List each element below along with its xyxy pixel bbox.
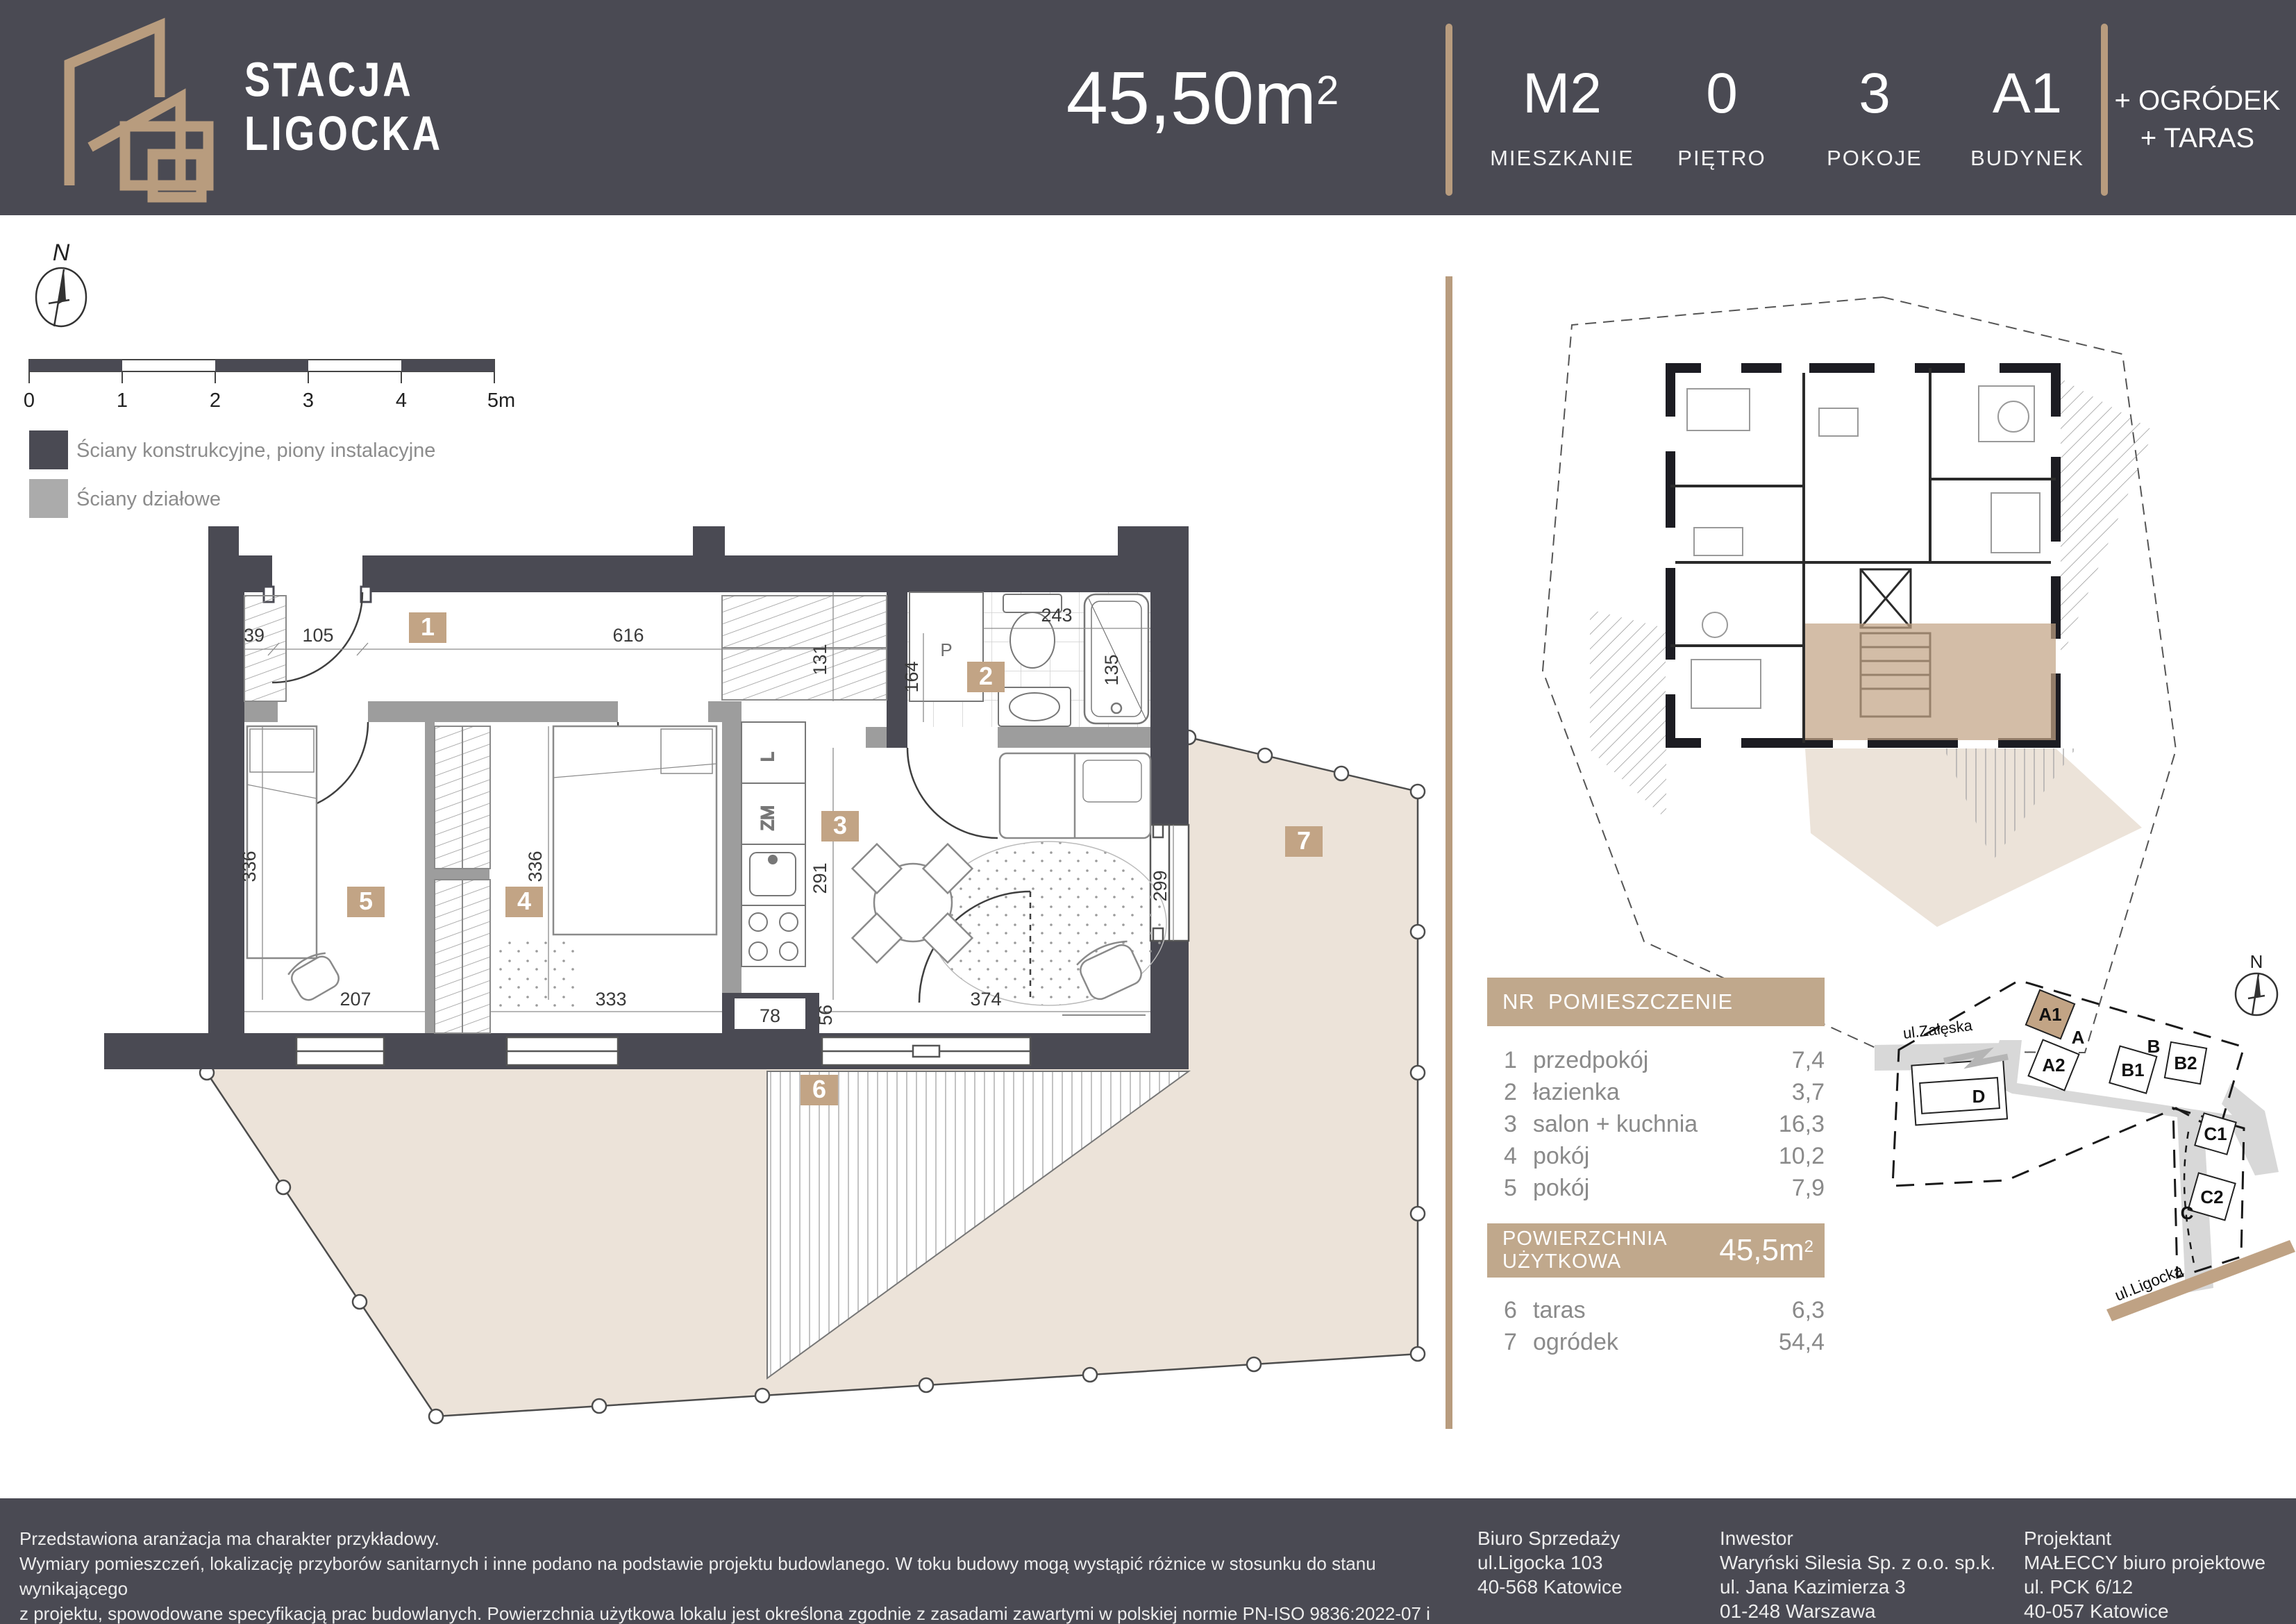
legend-partition-label: Ściany działowe — [76, 487, 221, 510]
stat-floor-value: 0 — [1652, 61, 1791, 126]
chip-room-3: 3 — [821, 811, 859, 842]
dishwasher-label: ZM — [758, 805, 778, 830]
table-row: 3salon + kuchnia16,3 — [1487, 1108, 1825, 1140]
apartment-area: 45,50m2 — [1066, 54, 1339, 141]
stat-building-label: BUDYNEK — [1958, 146, 2097, 171]
street-zaleska-label: ul.Załęska — [1902, 1016, 1974, 1042]
wall-stub — [1118, 526, 1189, 557]
dim-105: 105 — [302, 625, 333, 646]
svg-text:A1: A1 — [2038, 1004, 2061, 1025]
svg-text:3: 3 — [833, 811, 847, 839]
site-building-d — [1920, 1078, 2000, 1114]
chip-room-4: 4 — [505, 887, 543, 917]
wall-stub — [104, 1033, 208, 1069]
dim-78: 78 — [760, 1005, 780, 1026]
wall-stub — [208, 526, 239, 557]
overview-hatch-right — [2061, 378, 2154, 661]
svg-text:1: 1 — [117, 390, 128, 412]
window-living-terrace-door — [822, 1037, 1030, 1065]
dim-374: 374 — [970, 989, 1001, 1010]
sink-icon — [998, 687, 1071, 726]
dim-299: 299 — [1150, 870, 1171, 901]
dim-164: 164 — [901, 661, 922, 692]
sofa — [1000, 753, 1150, 838]
svg-text:4: 4 — [517, 887, 531, 915]
washer-label: P — [940, 639, 952, 660]
header-bar: STACJA LIGOCKA 45,50m2 M2 MIESZKANIE 0 P… — [0, 0, 2296, 215]
svg-text:6: 6 — [812, 1075, 826, 1103]
site-compass-icon — [2236, 973, 2277, 1015]
dim-333: 333 — [595, 989, 626, 1010]
bed-room4 — [553, 726, 717, 935]
dim-207: 207 — [340, 989, 371, 1010]
site-label-a: A — [2072, 1027, 2085, 1048]
stat-floor: 0 PIĘTRO — [1652, 0, 1791, 215]
scale-bar: 0 1 2 3 4 5m — [24, 360, 515, 412]
wardrobe-hall-left — [244, 596, 286, 701]
window-room4 — [507, 1037, 618, 1065]
svg-text:5: 5 — [359, 887, 373, 915]
usable-area-bar: POWIERZCHNIA UŻYTKOWA 45,5m2 — [1487, 1223, 1825, 1278]
svg-text:2: 2 — [979, 662, 993, 690]
svg-text:7: 7 — [1297, 826, 1311, 855]
room-table-header: NR POMIESZCZENIE — [1487, 978, 1825, 1026]
footer-bar: Przedstawiona aranżacja ma charakter prz… — [0, 1498, 2296, 1624]
chip-room-2: 2 — [967, 662, 1005, 692]
dim-336-right: 336 — [525, 851, 546, 882]
stat-building-value: A1 — [1958, 61, 2097, 126]
dim-56: 56 — [815, 1005, 836, 1026]
legend-swatch-partition — [29, 479, 68, 518]
disclaimer-line: Wymiary pomieszczeń, lokalizację przybor… — [19, 1551, 1436, 1601]
stat-apartment: M2 MIESZKANIE — [1486, 0, 1639, 215]
bathroom-left-wall — [887, 555, 907, 748]
svg-text:A2: A2 — [2042, 1055, 2065, 1075]
table-row: 5pokój7,9 — [1487, 1172, 1825, 1204]
site-label-b: B — [2147, 1036, 2161, 1057]
site-compass-label: N — [2250, 951, 2263, 972]
svg-text:C2: C2 — [2200, 1187, 2223, 1207]
rug-room4 — [494, 939, 578, 1008]
plan-canvas: P L ZM — [0, 0, 2296, 1624]
compass-label: N — [53, 240, 70, 266]
disclaimer: Przedstawiona aranżacja ma charakter prz… — [19, 1526, 1436, 1624]
stat-floor-label: PIĘTRO — [1652, 146, 1791, 171]
svg-text:B2: B2 — [2174, 1053, 2197, 1073]
logo-icon — [49, 15, 257, 203]
bed-room5 — [247, 726, 317, 958]
chip-room-6: 6 — [801, 1075, 838, 1105]
svg-text:0: 0 — [24, 390, 35, 412]
site-label-c: C — [2181, 1203, 2194, 1223]
chip-room-1: 1 — [409, 612, 446, 643]
svg-text:2: 2 — [210, 390, 221, 412]
bathroom-door-opening — [907, 727, 998, 748]
chip-room-7: 7 — [1285, 826, 1323, 857]
disclaimer-line: z projektu, spowodowane specyfikacją pra… — [19, 1601, 1436, 1624]
svg-text:4: 4 — [396, 390, 407, 412]
table-row: 7ogródek54,4 — [1487, 1326, 1825, 1358]
col-name: POMIESZCZENIE — [1548, 989, 1733, 1014]
usable-area-value: 45,5m2 — [1719, 1233, 1813, 1268]
bathroom-door-arc — [907, 748, 998, 838]
col-nr: NR — [1502, 989, 1548, 1014]
overview-highlighted-apartment — [1805, 623, 2056, 740]
designer-info: Projektant MAŁECCY biuro projektowe ul. … — [2024, 1526, 2265, 1623]
partition-kitchen — [722, 701, 741, 993]
kitchen-sink-icon — [750, 853, 796, 896]
dim-131: 131 — [810, 644, 830, 675]
svg-text:D: D — [1972, 1086, 1986, 1107]
table-row: 2łazienka3,7 — [1487, 1076, 1825, 1108]
site-plan: A1 A2 A B1 B2 B C1 C2 C D ul.Załęska ul.… — [1875, 951, 2295, 1321]
table-row: 1przedpokój7,4 — [1487, 1044, 1825, 1076]
stat-apartment-value: M2 — [1486, 61, 1639, 126]
dim-39: 39 — [244, 625, 265, 646]
window-room5 — [296, 1037, 384, 1065]
dim-616: 616 — [612, 625, 644, 646]
table-row: 6taras6,3 — [1487, 1294, 1825, 1326]
room-table: NR POMIESZCZENIE 1przedpokój7,4 2łazienk… — [1487, 978, 1825, 1358]
investor-info: Inwestor Waryński Silesia Sp. z o.o. sp.… — [1720, 1526, 1995, 1623]
brand-line1: STACJA — [244, 53, 443, 107]
svg-text:C1: C1 — [2204, 1123, 2227, 1144]
legend-items: Ściany konstrukcyjne, piony instalacyjne… — [29, 430, 435, 518]
chip-room-5: 5 — [347, 887, 385, 917]
stat-rooms: 3 POKOJE — [1805, 0, 1944, 215]
stat-building: A1 BUDYNEK — [1958, 0, 2097, 215]
wall-stub — [693, 526, 725, 557]
kitchen: L ZM — [741, 722, 805, 966]
header-divider — [2101, 24, 2108, 196]
legend-structural-label: Ściany konstrukcyjne, piony instalacyjne — [76, 438, 435, 462]
legend-swatch-structural — [29, 430, 68, 469]
sales-office-info: Biuro Sprzedaży ul.Ligocka 103 40-568 Ka… — [1477, 1526, 1623, 1599]
dim-135: 135 — [1101, 654, 1122, 685]
brand-line2: LIGOCKA — [244, 107, 443, 161]
usable-area-label: POWIERZCHNIA UŻYTKOWA — [1502, 1228, 1719, 1273]
floorplan-sheet: P L ZM — [0, 0, 2296, 1624]
entrance-opening — [272, 555, 362, 592]
header-divider — [1446, 24, 1452, 196]
fridge-label: L — [758, 752, 778, 762]
svg-text:3: 3 — [303, 390, 314, 412]
table-row: 4pokój10,2 — [1487, 1140, 1825, 1172]
svg-text:B1: B1 — [2121, 1060, 2144, 1080]
svg-text:5m: 5m — [487, 390, 515, 412]
stat-apartment-label: MIESZKANIE — [1486, 146, 1639, 171]
dim-243: 243 — [1041, 605, 1072, 626]
building-overview — [1543, 297, 2176, 1053]
stat-rooms-label: POKOJE — [1805, 146, 1944, 171]
furniture — [247, 726, 1166, 1015]
brand-name: STACJA LIGOCKA — [244, 53, 443, 160]
scale-labels: 0 1 2 3 4 5m — [24, 390, 515, 412]
extras-label: + OGRÓDEK + TARAS — [2115, 82, 2281, 157]
legend-area: N 0 1 2 3 4 5m Ściany konstrukcyjne, pio… — [24, 240, 515, 518]
svg-text:1: 1 — [421, 612, 435, 641]
dim-336-left: 336 — [239, 851, 260, 882]
disclaimer-line: Przedstawiona aranżacja ma charakter prz… — [19, 1526, 1436, 1551]
stat-rooms-value: 3 — [1805, 61, 1944, 126]
dim-291: 291 — [810, 862, 830, 894]
vertical-separator — [1446, 276, 1452, 1429]
overview-hatch-left — [1590, 610, 1666, 819]
compass-icon — [36, 268, 86, 326]
